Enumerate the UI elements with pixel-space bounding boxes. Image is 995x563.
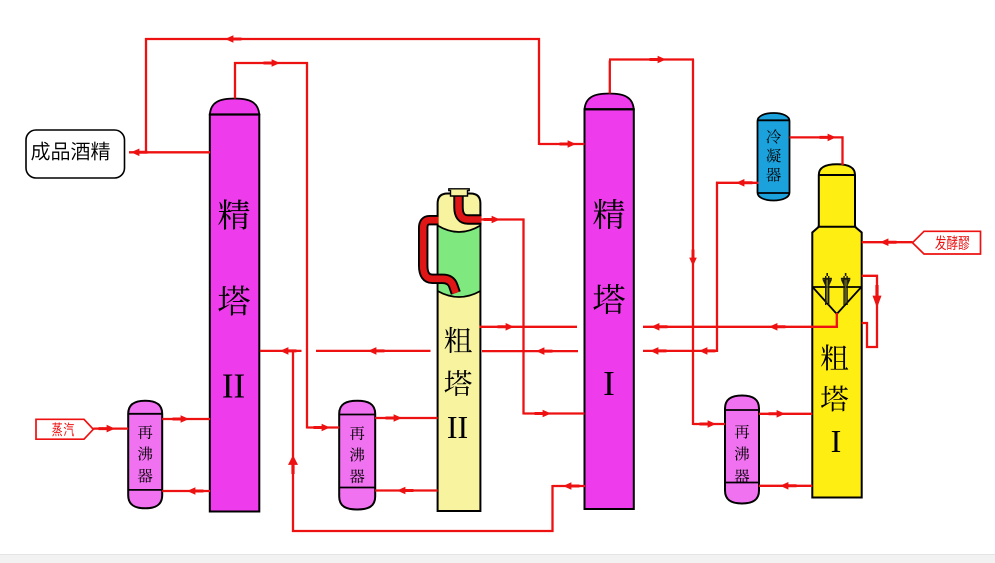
svg-text:I: I: [603, 364, 615, 403]
svg-text:II: II: [222, 367, 245, 406]
svg-text:I: I: [831, 423, 842, 459]
svg-text:II: II: [447, 409, 468, 445]
